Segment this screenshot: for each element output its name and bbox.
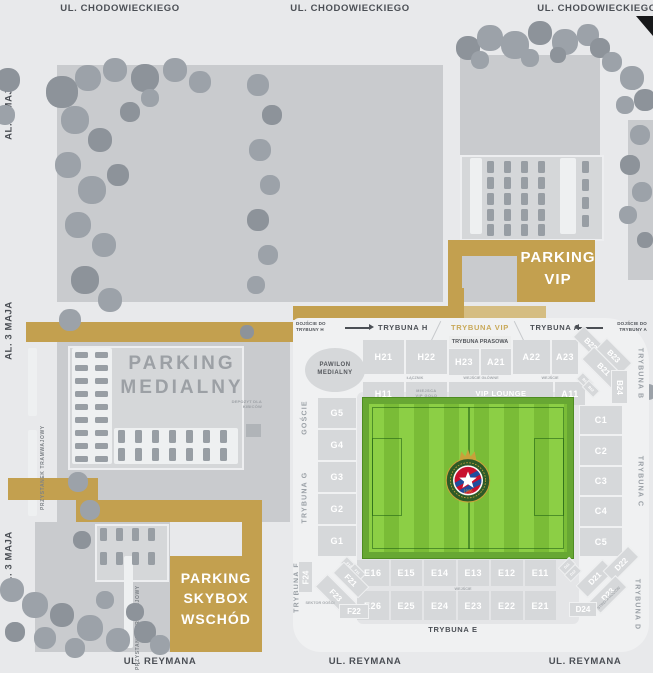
tree-icon [106,628,130,652]
car-icon [75,456,88,462]
gold-walkway-sw4 [242,520,262,558]
street-label-reymana-3: UL. REYMANA [515,656,653,667]
stadium: DOJŚCIE DO TRYBUNY H TRYBUNA H TRYBUNA V… [293,318,649,652]
tree-icon [96,591,114,609]
car-icon [203,430,210,443]
tree-icon [78,176,106,204]
street-label-reymana-1: UL. REYMANA [90,656,230,667]
tree-icon [630,125,650,145]
tree-icon [126,603,144,621]
tram-platform [28,348,37,416]
tree-icon [46,76,78,108]
street-label-reymana-2: UL. REYMANA [295,656,435,667]
car-icon [582,197,589,209]
crest-year: 1906 [463,488,473,493]
parking-skybox-line1: PARKING [170,568,262,588]
street-label-chodowieckiego-2: UL. CHODOWIECKIEGO [260,3,440,14]
tree-icon [247,74,269,96]
crest-crown-icon [460,449,477,459]
tree-icon [260,175,280,195]
car-icon [521,193,528,205]
tree-icon [98,288,122,312]
away-sector-label: SEKTOR GOŚCI [301,601,339,606]
parking-medialny-line2: MEDIALNY [116,376,248,400]
section-e23[interactable]: E23 [458,591,490,620]
car-icon [504,161,511,173]
car-icon [538,161,545,173]
section-b24-label: B24 [615,380,624,395]
car-icon [538,224,545,236]
tree-icon [150,635,170,655]
pitch-penalty-box-left [372,438,402,516]
tree-icon [247,276,265,294]
section-c4[interactable]: C4 [580,497,622,525]
section-a21[interactable]: A21 [481,349,511,375]
car-icon [148,528,155,541]
car-icon [95,443,108,449]
section-b24[interactable]: B24 [611,370,628,404]
tree-icon [107,164,129,186]
media-pavilion-label: PAWILON MEDIALNY [312,362,358,378]
car-icon [538,177,545,189]
tree-icon [61,106,89,134]
section-f22[interactable]: F22 [339,604,369,619]
depot-building [246,424,261,437]
tree-icon [65,638,85,658]
section-e15[interactable]: E15 [391,560,423,586]
car-icon [95,391,108,397]
car-icon [132,552,139,565]
tree-icon [528,21,552,45]
media-pavilion[interactable]: PAWILON MEDIALNY [303,346,367,394]
car-icon [75,430,88,436]
tram-platform [28,430,37,516]
tree-icon [258,245,278,265]
car-icon [152,430,159,443]
section-g5[interactable]: G5 [318,398,356,428]
car-icon [148,552,155,565]
parking-lane [560,158,576,234]
car-icon [521,224,528,236]
gate-label-3: WEJŚCIE [525,376,575,380]
press-stand-group: TRYBUNA PRASOWA H23 A21 [449,336,511,375]
stand-vip-label[interactable]: TRYBUNA VIP [445,323,515,332]
tree-icon [632,182,652,202]
section-g4[interactable]: G4 [318,430,356,460]
map-corner-marker [636,16,653,36]
car-icon [487,161,494,173]
section-c3[interactable]: C3 [580,467,622,495]
car-icon [75,365,88,371]
approach-stand-a-label: DOJŚCIE DO TRYBUNY A [605,321,647,333]
arrow-right-icon [345,327,369,329]
section-e22[interactable]: E22 [491,591,523,620]
tree-icon [65,212,91,238]
car-icon [75,391,88,397]
tree-icon [247,209,269,231]
car-icon [75,443,88,449]
car-icon [95,417,108,423]
stand-e-upper-sections: E16E15E14E13E12E11 [357,560,556,586]
section-e12[interactable]: E12 [491,560,523,586]
stand-e-lower-sections: E26E25E24E23E22E21 [357,591,556,620]
car-icon [521,209,528,221]
football-pitch: 1906 [363,398,573,558]
car-icon [487,224,494,236]
press-stand-label: TRYBUNA PRASOWA [449,336,511,348]
car-icon [504,209,511,221]
depot-label: DEPOZYT DLA KIBICÓW [226,400,262,410]
pitch-penalty-box-right [534,438,564,516]
guests-label: GOŚCIE [302,396,309,440]
tree-icon [189,71,211,93]
car-icon [95,365,108,371]
section-e13[interactable]: E13 [458,560,490,586]
gold-walkway-sw3 [76,500,262,522]
tree-icon [477,25,503,51]
tree-icon [68,472,88,492]
south-gate-label: WEJŚCIE [433,587,493,591]
car-icon [504,224,511,236]
stadium-area-map: PARKING VIP PARKING SKYBOX WSCHÓD PARKIN… [0,0,653,673]
stand-d-label: TRYBUNA D [634,575,641,635]
car-icon [582,179,589,191]
tree-icon [34,627,56,649]
section-e25[interactable]: E25 [391,591,423,620]
tree-icon [59,309,81,331]
section-e24[interactable]: E24 [424,591,456,620]
car-icon [135,448,142,461]
section-c5[interactable]: C5 [580,528,622,556]
section-g2[interactable]: G2 [318,494,356,524]
car-icon [132,528,139,541]
tram-stop-label-1: PRZYSTANEK TRAMWAJOWY [40,370,46,510]
section-f24[interactable]: F24 [298,561,313,593]
stand-b-label: TRYBUNA B [637,344,644,404]
tree-icon [619,206,637,224]
tree-icon [71,266,99,294]
gold-connector-vip [448,288,464,320]
tree-icon [616,96,634,114]
tree-icon [249,139,271,161]
car-icon [487,209,494,221]
car-icon [75,404,88,410]
car-icon [582,215,589,227]
car-icon [487,193,494,205]
tree-icon [620,66,644,90]
parking-vip-line2: VIP [505,269,611,291]
tree-icon [0,578,24,602]
approach-stand-h-label: DOJŚCIE DO TRYBUNY H [296,321,344,333]
parking-medialny-label: PARKING MEDIALNY [116,352,248,400]
car-icon [75,352,88,358]
car-icon [220,430,227,443]
stand-g-label: TRYBUNA G [302,465,309,531]
car-icon [504,177,511,189]
car-icon [504,193,511,205]
car-icon [75,417,88,423]
parking-lane [470,158,482,234]
utility-box-label: MIEJSCA VIP GOLD [415,389,439,398]
parking-vip-line1: PARKING [505,247,611,269]
section-a22[interactable]: A22 [513,340,550,374]
section-f24-label: F24 [301,570,310,584]
section-g1[interactable]: G1 [318,526,356,556]
car-icon [118,448,125,461]
street-label-chodowieckiego-3: UL. CHODOWIECKIEGO [507,3,653,14]
car-icon [538,193,545,205]
car-icon [169,430,176,443]
tree-icon [262,105,282,125]
tree-icon [602,52,622,72]
section-g3[interactable]: G3 [318,462,356,492]
car-icon [95,352,108,358]
gate-label-2: WEJŚCIE GŁÓWNE [451,376,511,380]
tree-icon [73,531,91,549]
tree-icon [92,233,116,257]
car-icon [95,430,108,436]
car-icon [186,430,193,443]
car-icon [95,404,108,410]
car-icon [521,177,528,189]
tree-icon [103,58,127,82]
car-icon [186,448,193,461]
tree-icon [5,622,25,642]
parking-skybox-line2: SKYBOX [170,588,262,608]
wisla-crest: 1906 [443,446,493,506]
section-a23[interactable]: A23 [552,340,578,374]
street-label-chodowieckiego-1: UL. CHODOWIECKIEGO [30,3,210,14]
tree-icon [240,325,254,339]
tree-icon [77,615,103,641]
tree-icon [131,64,159,92]
section-e11[interactable]: E11 [525,560,557,586]
tree-icon [521,49,539,67]
car-icon [538,209,545,221]
tree-icon [55,152,81,178]
street-label-maja-2: AL. 3 MAJA [4,281,15,381]
car-icon [203,448,210,461]
car-icon [582,161,589,173]
section-c1[interactable]: C1 [580,406,622,434]
tree-icon [88,128,112,152]
section-h22[interactable]: H22 [406,340,447,374]
parking-skybox-label: PARKING SKYBOX WSCHÓD [170,568,262,629]
tree-icon [471,51,489,69]
car-icon [135,430,142,443]
tree-icon [50,603,74,627]
tree-icon [80,500,100,520]
tree-icon [120,102,140,122]
parking-vip-label: PARKING VIP [505,247,611,291]
car-icon [95,378,108,384]
car-icon [75,378,88,384]
car-icon [118,430,125,443]
car-icon [100,528,107,541]
tree-icon [141,89,159,107]
stand-h-label[interactable]: TRYBUNA H [371,323,435,332]
parking-skybox-line3: WSCHÓD [170,609,262,629]
tree-icon [163,58,187,82]
stand-c-sections: C1C2C3C4C5 [580,406,622,556]
gate-label-1: ŁĄCZNIK [385,376,445,380]
city-block-north [460,55,600,155]
section-h23[interactable]: H23 [449,349,479,375]
section-e21[interactable]: E21 [525,591,557,620]
tree-icon [634,89,653,111]
car-icon [220,448,227,461]
tram-stop-label-2: PRZYSTANEK TRAMWAJOWY [135,530,141,670]
section-e14[interactable]: E14 [424,560,456,586]
car-icon [521,161,528,173]
section-c2[interactable]: C2 [580,436,622,464]
tree-icon [620,155,640,175]
car-icon [169,448,176,461]
car-icon [487,177,494,189]
car-icon [116,528,123,541]
section-h21[interactable]: H21 [363,340,404,374]
stand-c-label: TRYBUNA C [637,449,644,515]
tree-icon [75,65,101,91]
parking-medialny-line1: PARKING [116,352,248,376]
tree-icon [550,47,566,63]
car-icon [152,448,159,461]
tree-icon [637,232,653,248]
car-icon [116,552,123,565]
stand-g-sections: G5G4G3G2G1 [318,398,356,556]
tree-icon [22,592,48,618]
car-icon [95,456,108,462]
car-icon [100,552,107,565]
tree-icon [0,68,20,92]
stand-e-label: TRYBUNA E [383,625,523,634]
